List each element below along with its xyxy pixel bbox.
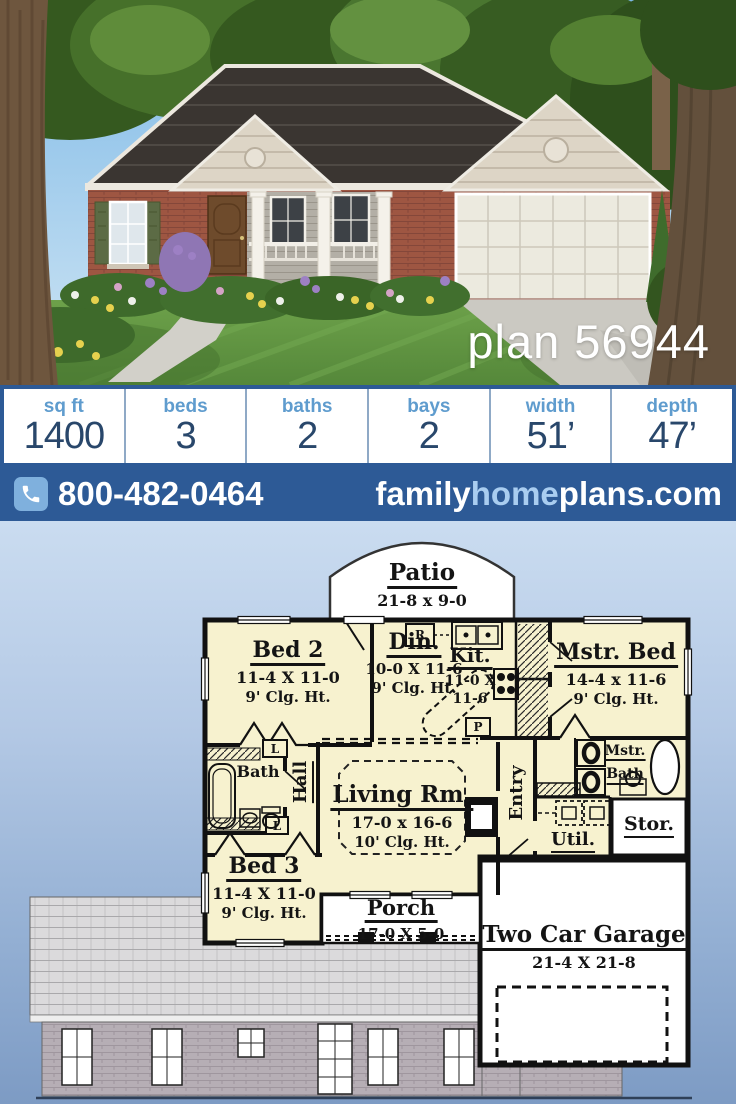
stats-bar: sq ft 1400 beds 3 baths 2 bays 2 width 5… — [0, 385, 736, 467]
garage-name: Two Car Garage — [480, 923, 687, 951]
bed2-ceiling: 9' Clg. Ht. — [236, 690, 340, 705]
hall-name: Hall — [290, 761, 314, 803]
bath-name: Bath — [237, 762, 280, 781]
stat-bays: bays 2 — [369, 389, 491, 463]
bed3-name: Bed 3 — [227, 855, 302, 882]
room-label-master-bed: Mstr. Bed 14-4 x 11-6 9' Clg. Ht. — [554, 641, 678, 707]
stat-label: width — [526, 397, 576, 416]
stat-value: 51’ — [527, 416, 575, 458]
room-label-porch: Porch 17-0 X 5-0 — [358, 897, 445, 942]
room-label-entry: Entry — [508, 765, 526, 820]
stat-width: width 51’ — [491, 389, 613, 463]
stat-depth: depth 47’ — [612, 389, 732, 463]
marker-linen-top: L — [271, 742, 279, 756]
living-name: Living Rm. — [330, 783, 473, 811]
stat-baths: baths 2 — [247, 389, 369, 463]
stat-label: beds — [163, 397, 207, 416]
stat-sqft: sq ft 1400 — [4, 389, 126, 463]
floorplan-section: Patio 21-8 x 9-0 Bed 2 11-4 X 11-0 9' Cl… — [0, 521, 736, 1104]
site-family: family — [375, 475, 470, 512]
stat-value: 2 — [297, 416, 317, 458]
stat-label: bays — [407, 397, 450, 416]
phone-icon — [14, 477, 48, 511]
room-label-utility: Util. — [551, 831, 595, 849]
stat-label: baths — [282, 397, 333, 416]
porch-dims: 17-0 X 5-0 — [358, 927, 445, 942]
utility-name: Util. — [551, 829, 595, 853]
website: familyhomeplans.com — [375, 475, 722, 513]
room-label-garage: Two Car Garage 21-4 X 21-8 — [480, 923, 687, 971]
garage-door — [456, 194, 650, 300]
marker-linen-bottom: L — [273, 819, 281, 833]
patio-dims: 21-8 x 9-0 — [377, 593, 467, 609]
stat-value: 1400 — [24, 416, 105, 458]
kitchen-dims2: 11-6 — [445, 692, 496, 706]
master-bath-line1: Mstr. — [605, 744, 646, 761]
site-plans: plans.com — [559, 475, 722, 512]
master-bed-ceiling: 9' Clg. Ht. — [554, 692, 678, 707]
shuttered-window — [95, 202, 160, 269]
phone-number: 800-482-0464 — [58, 475, 264, 513]
living-dims: 17-0 x 16-6 — [330, 815, 473, 831]
room-label-hall: Hall — [292, 761, 310, 803]
room-label-bed3: Bed 3 11-4 X 11-0 9' Clg. Ht. — [212, 855, 316, 921]
bed2-name: Bed 2 — [251, 639, 326, 666]
room-label-bath: Bath — [237, 764, 280, 780]
room-label-bed2: Bed 2 11-4 X 11-0 9' Clg. Ht. — [236, 639, 340, 705]
bed3-dims: 11-4 X 11-0 — [212, 886, 316, 902]
room-label-living: Living Rm. 17-0 x 16-6 10' Clg. Ht. — [330, 783, 473, 850]
stat-label: sq ft — [44, 397, 84, 416]
plan-number: plan 56944 — [467, 314, 710, 369]
master-bed-name: Mstr. Bed — [554, 641, 678, 668]
site-home: home — [471, 475, 559, 512]
stat-beds: beds 3 — [126, 389, 248, 463]
master-bath-line2: Bath — [606, 766, 644, 785]
garage-dims: 21-4 X 21-8 — [480, 955, 687, 971]
stat-value: 3 — [175, 416, 195, 458]
bed3-ceiling: 9' Clg. Ht. — [212, 906, 316, 921]
room-label-master-bath: Mstr. Bath — [605, 742, 646, 781]
stat-value: 47’ — [648, 416, 696, 458]
living-ceiling: 10' Clg. Ht. — [330, 835, 473, 850]
room-label-storage: Stor. — [624, 815, 674, 834]
stat-value: 2 — [419, 416, 439, 458]
entry-name: Entry — [506, 765, 527, 820]
gable-vent — [245, 148, 265, 168]
porch-name: Porch — [365, 897, 437, 923]
bed2-dims: 11-4 X 11-0 — [236, 670, 340, 686]
garage-gable-vent — [544, 138, 568, 162]
patio-name: Patio — [387, 561, 457, 589]
stat-label: depth — [646, 397, 698, 416]
dining-name: Din. — [386, 631, 441, 658]
marker-pantry: P — [473, 720, 482, 734]
room-label-patio: Patio 21-8 x 9-0 — [377, 561, 467, 609]
kitchen-name: Kit. — [447, 645, 492, 670]
master-bed-dims: 14-4 x 11-6 — [554, 672, 678, 688]
room-label-kitchen: Kit. 11-0 X 11-6 — [445, 645, 496, 706]
kitchen-dims1: 11-0 X — [445, 674, 496, 688]
marker-range: R — [415, 628, 425, 642]
house-photo: plan 56944 — [0, 0, 736, 385]
contact-bar: 800-482-0464 familyhomeplans.com — [0, 467, 736, 521]
front-door — [208, 196, 246, 274]
storage-name: Stor. — [624, 813, 674, 838]
